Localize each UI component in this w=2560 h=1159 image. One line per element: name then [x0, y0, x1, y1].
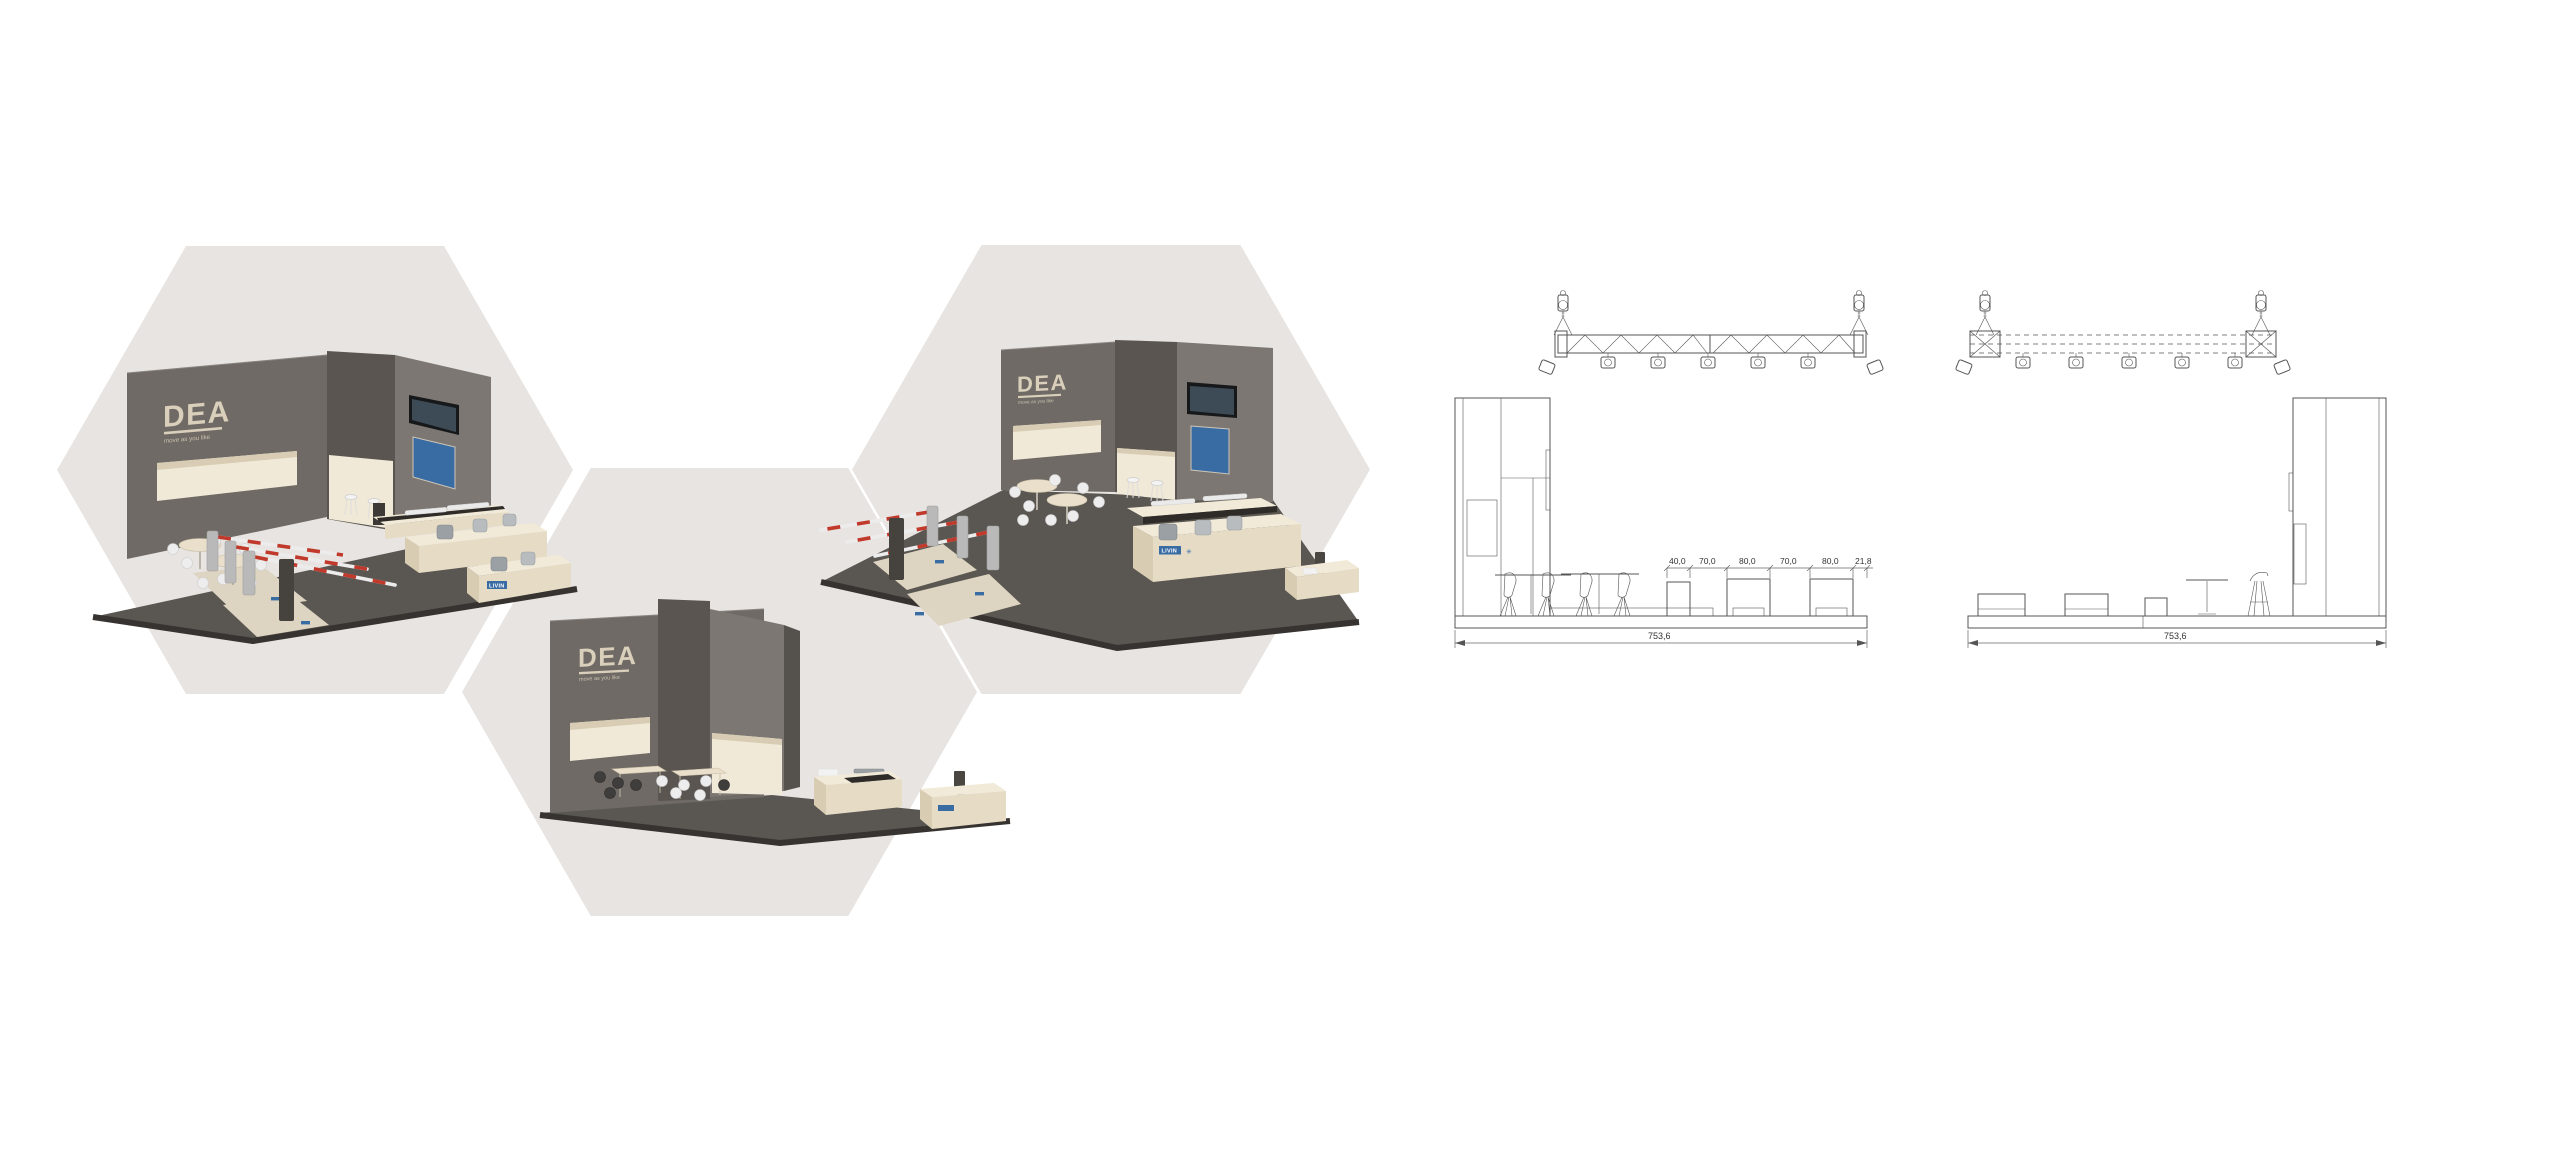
logo-text: DEA [1017, 369, 1068, 397]
star-mark: ✳ [1186, 548, 1192, 556]
livin-label-small [938, 805, 954, 811]
svg-text:753,6: 753,6 [2164, 631, 2187, 641]
elevation-right-wall [2289, 398, 2386, 616]
technical-drawing-side-elevation: 753,6 [1958, 278, 2408, 653]
total-dimension: 753,6 [1455, 630, 1867, 648]
blue-poster [1191, 426, 1229, 474]
svg-text:70,0: 70,0 [1780, 556, 1797, 566]
rigging-truss-dashed [1955, 291, 2290, 375]
barrier-post-dark [889, 518, 904, 580]
lit-bar-niche [1117, 448, 1175, 501]
svg-text:753,6: 753,6 [1648, 631, 1671, 641]
svg-text:80,0: 80,0 [1822, 556, 1839, 566]
barrier-post [957, 516, 968, 558]
elevation-counters [1978, 594, 2167, 616]
svg-text:21,8: 21,8 [1855, 556, 1872, 566]
elevation-counters [1667, 579, 1853, 616]
logo-text: DEA [578, 640, 637, 673]
svg-text:LIVIN: LIVIN [1162, 549, 1178, 555]
barrier-post [987, 526, 999, 570]
svg-text:40,0: 40,0 [1669, 556, 1686, 566]
product-counter-left [814, 769, 902, 815]
technical-drawing-front-elevation: 40,0 70,0 80,0 70,0 80,0 21,8 753,6 [1443, 278, 1893, 653]
rigging-truss [1538, 291, 1883, 375]
svg-text:80,0: 80,0 [1739, 556, 1756, 566]
product-counter-right [920, 771, 1006, 829]
product-display-table: LIVIN ✳ [1127, 493, 1301, 582]
elevation-platform [1455, 616, 1867, 628]
elevation-left-wall [1455, 398, 1550, 616]
barrier-post [207, 531, 218, 571]
tv-screen [1187, 382, 1237, 418]
dimension-chain: 40,0 70,0 80,0 70,0 80,0 21,8 [1664, 556, 1873, 578]
barrier-post [243, 551, 255, 595]
total-dimension: 753,6 [1968, 630, 2386, 648]
booth-render-frontal: DEA move as you like [462, 585, 1042, 885]
elevation-furniture [1495, 573, 1713, 616]
presentation-canvas: DEA move as you like [0, 0, 2560, 1159]
barrier-post [927, 506, 938, 546]
barrier-post [225, 541, 236, 583]
barrier-post-dark [279, 559, 294, 621]
svg-text:70,0: 70,0 [1699, 556, 1716, 566]
elevation-platform [1968, 616, 2386, 628]
elevation-table-and-stool [2186, 572, 2270, 616]
